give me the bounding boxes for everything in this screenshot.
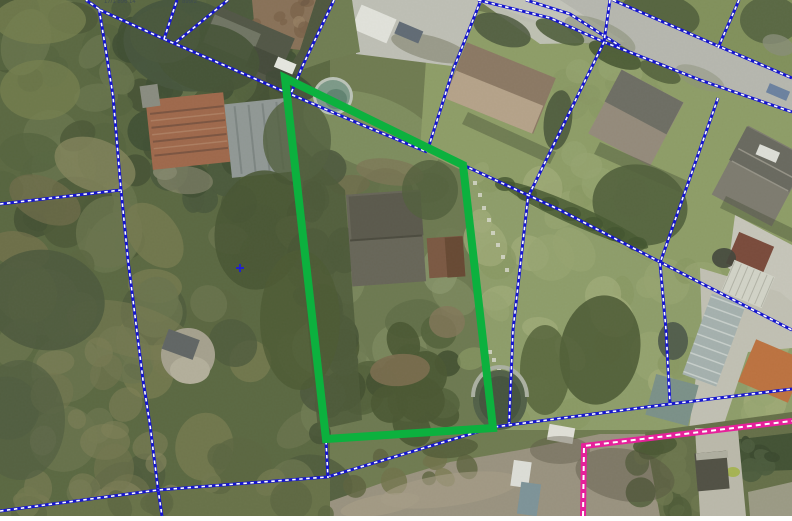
svg-text:17/1 896 14: 17/1 896 14 — [104, 0, 136, 5]
svg-text:899/2: 899/2 — [182, 0, 198, 5]
